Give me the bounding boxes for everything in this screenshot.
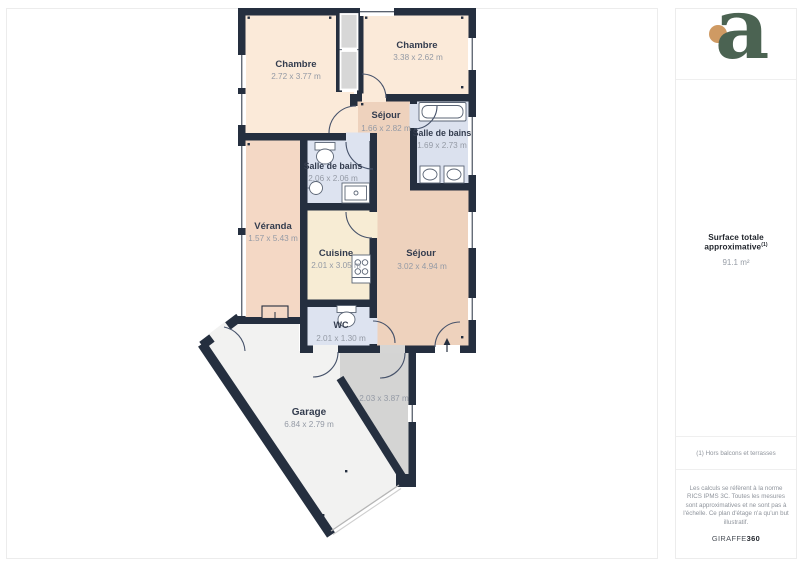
room-dims: 1.57 x 5.43 m bbox=[248, 234, 298, 243]
window bbox=[238, 235, 247, 316]
disclaimer-section: Les calculs se réfèrent à la norme RICS … bbox=[676, 469, 796, 558]
closet bbox=[341, 14, 358, 90]
logo-section: a bbox=[676, 9, 796, 80]
room-label: WC bbox=[334, 320, 349, 330]
shower bbox=[342, 183, 370, 203]
room-dims: 2.72 x 3.77 m bbox=[271, 72, 321, 81]
room-dims: 2.03 x 3.87 m bbox=[359, 394, 409, 403]
room-dims: 3.38 x 2.62 m bbox=[393, 53, 443, 62]
sink bbox=[420, 166, 440, 183]
window bbox=[468, 298, 477, 320]
giraffe360-logo: GIRAFFE360 bbox=[712, 534, 760, 543]
page: Chambre 2.72 x 3.77 m Chambre 3.38 x 2.6… bbox=[0, 0, 800, 564]
surface-total-text: Surface totale approximative bbox=[704, 233, 763, 252]
room-label: Chambre bbox=[396, 40, 437, 51]
room-label: Séjour bbox=[372, 110, 401, 120]
brand-suffix: 360 bbox=[747, 534, 761, 543]
surface-total-label: Surface totale approximative(1) bbox=[676, 233, 796, 252]
room-dims: 1.69 x 2.73 m bbox=[417, 141, 467, 150]
room-label: Véranda bbox=[254, 221, 292, 232]
sink bbox=[444, 166, 464, 183]
room-label: Garage bbox=[292, 407, 327, 418]
footnote-section: (1) Hors balcons et terrasses bbox=[676, 436, 796, 469]
surface-section: Surface totale approximative(1) 91.1 m² bbox=[676, 80, 796, 436]
surface-total-value: 91.1 m² bbox=[722, 258, 749, 267]
info-panel: a Surface totale approximative(1) 91.1 m… bbox=[675, 8, 797, 559]
room-label: Salle de bains bbox=[304, 161, 363, 171]
bathtub bbox=[419, 103, 466, 122]
window bbox=[468, 117, 477, 175]
window bbox=[468, 38, 477, 70]
room-dims: 2.01 x 3.05 m bbox=[311, 261, 361, 270]
room-dims: 6.84 x 2.79 m bbox=[284, 420, 334, 429]
room-dims: 2.01 x 1.30 m bbox=[316, 334, 366, 343]
window bbox=[468, 212, 477, 248]
brand-logo: a bbox=[715, 0, 769, 71]
surface-footnote-marker: (1) bbox=[761, 242, 767, 248]
window bbox=[238, 94, 247, 125]
room-label: Séjour bbox=[406, 248, 436, 259]
footnote-text: (1) Hors balcons et terrasses bbox=[696, 450, 775, 457]
window bbox=[238, 55, 247, 88]
window bbox=[238, 146, 247, 228]
room-label: Salle de bains bbox=[413, 128, 472, 138]
room-label: Chambre bbox=[275, 59, 316, 70]
disclaimer-text: Les calculs se réfèrent à la norme RICS … bbox=[683, 485, 789, 527]
veranda-step bbox=[262, 306, 288, 319]
brand-name: GIRAFFE bbox=[712, 534, 747, 543]
window bbox=[408, 405, 417, 422]
room-dims: 2.06 x 2.06 m bbox=[308, 174, 358, 183]
room-label: Cuisine bbox=[319, 248, 353, 259]
room-dims: 1.66 x 2.82 m bbox=[361, 124, 411, 133]
room-dims: 3.02 x 4.94 m bbox=[397, 262, 447, 271]
window bbox=[360, 8, 394, 17]
